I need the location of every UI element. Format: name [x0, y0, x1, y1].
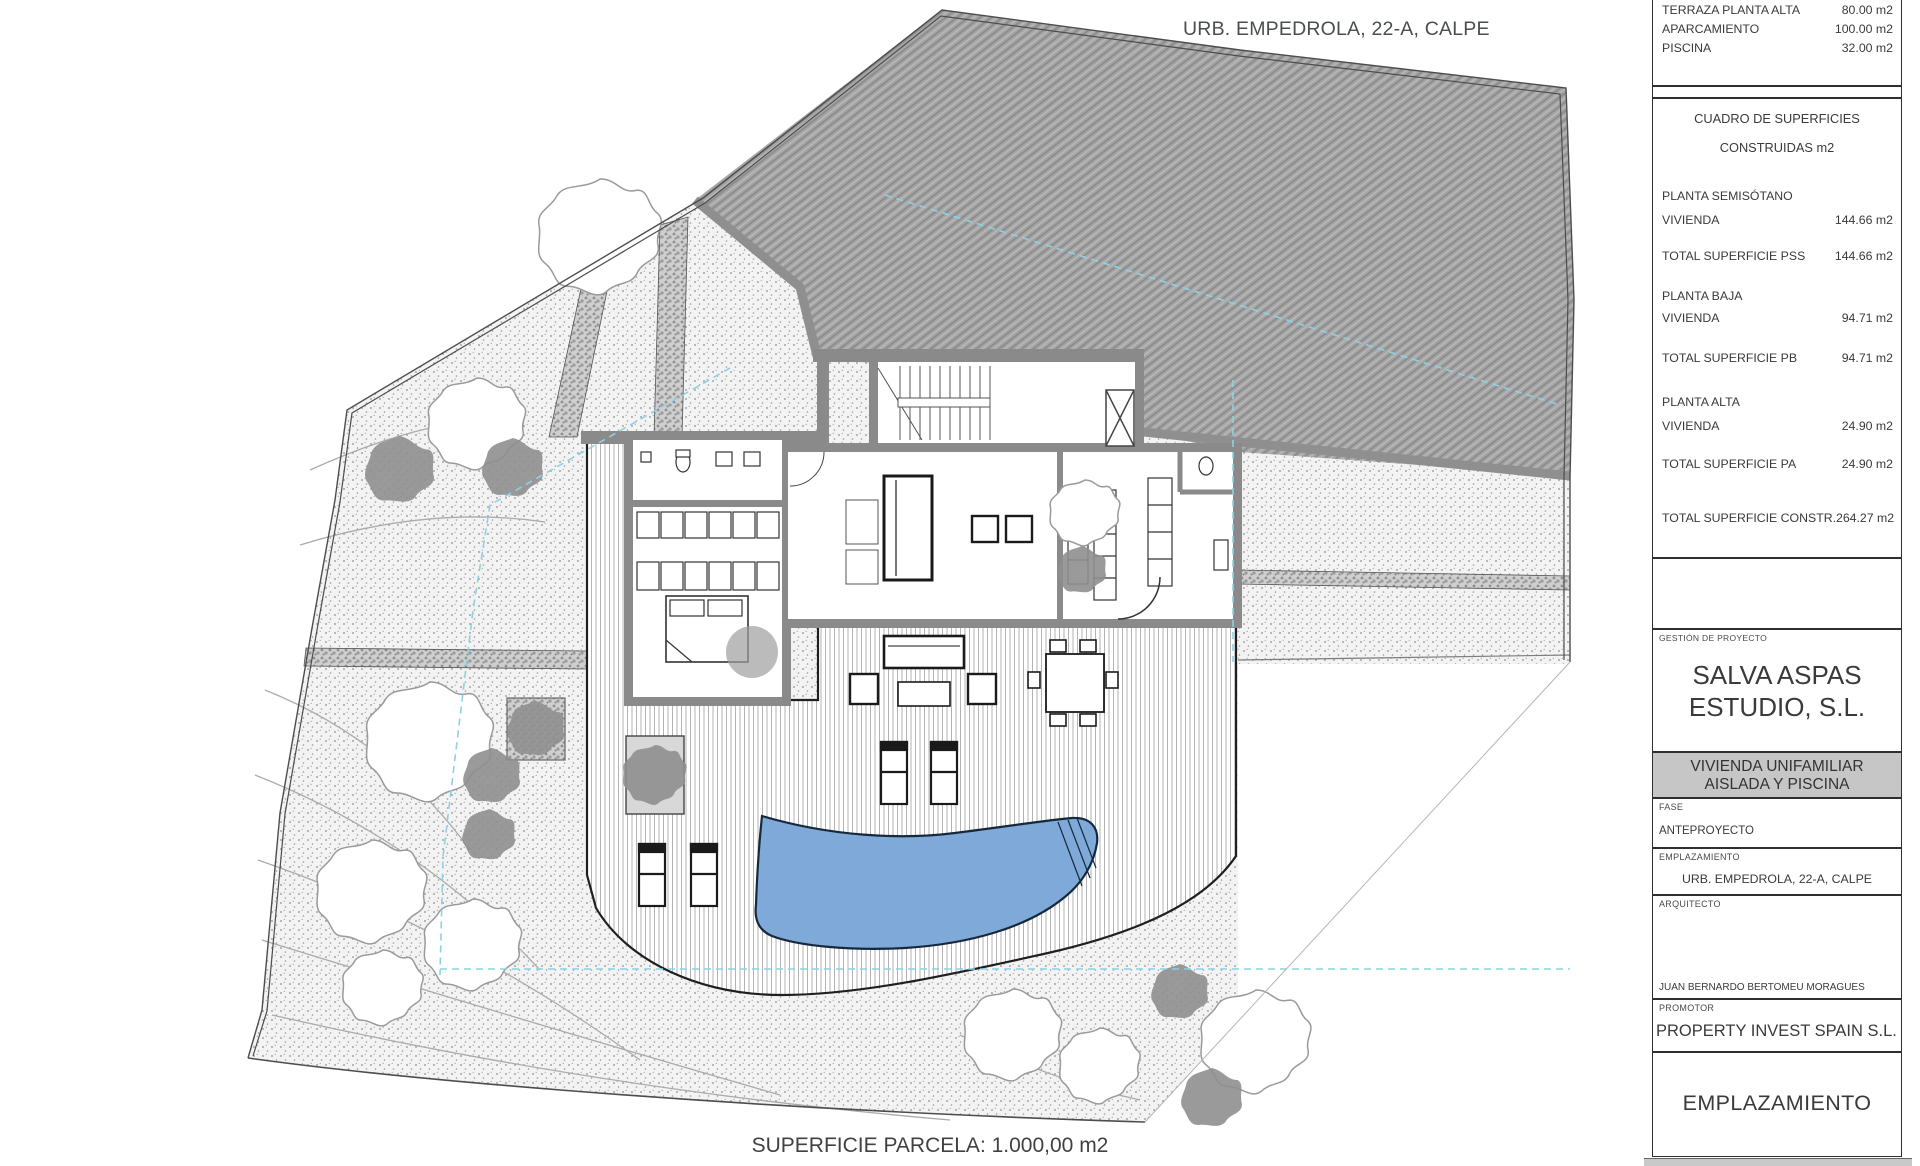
surface-total-row: TOTAL SUPERFICIE PB94.71 m2 — [1662, 351, 1893, 365]
site-plan-drawing — [0, 0, 1920, 1166]
area-row: PISCINA 32.00 m2 — [1662, 41, 1893, 55]
fase-label: FASE — [1659, 802, 1683, 812]
sheet-title-box: EMPLAZAMIENTO — [1652, 1052, 1902, 1157]
fase-value: ANTEPROYECTO — [1659, 825, 1754, 837]
section-label: PLANTA BAJA — [1662, 289, 1893, 303]
titleblock-bottom-strip — [1644, 1158, 1912, 1166]
fase-box: FASE ANTEPROYECTO — [1652, 798, 1902, 848]
spacer-box — [1652, 558, 1902, 629]
area-row: APARCAMIENTO 100.00 m2 — [1662, 22, 1893, 36]
location-value: URB. EMPEDROLA, 22-A, CALPE — [1653, 872, 1901, 886]
architect-label: ARQUITECTO — [1659, 899, 1721, 909]
drawing-title: URB. EMPEDROLA, 22-A, CALPE — [1183, 18, 1503, 41]
area-row: TERRAZA PLANTA ALTA 80.00 m2 — [1662, 3, 1893, 17]
surfaces-table-box: CUADRO DE SUPERFICIES CONSTRUIDAS m2 PLA… — [1652, 98, 1902, 558]
exterior-areas-box: TERRAZA PLANTA ALTA 80.00 m2 APARCAMIENT… — [1652, 0, 1902, 86]
architect-box: ARQUITECTO JUAN BERNARDO BERTOMEU MORAGU… — [1652, 895, 1902, 999]
developer-label: PROMOTOR — [1659, 1003, 1714, 1013]
spacer-box — [1652, 86, 1902, 98]
developer-name: PROPERTY INVEST SPAIN S.L. — [1656, 1022, 1901, 1041]
studio-name-line2: ESTUDIO, S.L. — [1653, 692, 1901, 723]
gestion-label: GESTIÓN DE PROYECTO — [1659, 633, 1767, 643]
round-rug — [726, 626, 778, 678]
surface-grand-total-row: TOTAL SUPERFICIE CONSTR.264.27 m2 — [1662, 511, 1893, 525]
surfaces-subtitle: CONSTRUIDAS m2 — [1653, 140, 1901, 155]
title-block: TERRAZA PLANTA ALTA 80.00 m2 APARCAMIENT… — [1652, 0, 1902, 1166]
site-plan-sheet: URB. EMPEDROLA, 22-A, CALPE SUPERFICIE P… — [0, 0, 1920, 1166]
elevator-shaft — [1106, 390, 1134, 446]
surface-total-row: TOTAL SUPERFICIE PSS144.66 m2 — [1662, 249, 1893, 263]
project-management-box: GESTIÓN DE PROYECTO SALVA ASPAS ESTUDIO,… — [1652, 629, 1902, 752]
studio-name-line1: SALVA ASPAS — [1653, 660, 1901, 691]
project-title-box: VIVIENDA UNIFAMILIAR AISLADA Y PISCINA — [1652, 752, 1902, 798]
surface-total-row: TOTAL SUPERFICIE PA24.90 m2 — [1662, 457, 1893, 471]
surface-row: VIVIENDA144.66 m2 — [1662, 213, 1893, 227]
location-label: EMPLAZAMIENTO — [1659, 852, 1740, 862]
section-label: PLANTA SEMISÓTANO — [1662, 189, 1893, 203]
project-title-line2: AISLADA Y PISCINA — [1653, 776, 1901, 794]
project-title-line1: VIVIENDA UNIFAMILIAR — [1653, 758, 1901, 776]
section-label: PLANTA ALTA — [1662, 395, 1893, 409]
developer-box: PROMOTOR PROPERTY INVEST SPAIN S.L. — [1652, 999, 1902, 1052]
parcel-area-note: SUPERFICIE PARCELA: 1.000,00 m2 — [600, 1134, 1260, 1158]
surface-row: VIVIENDA94.71 m2 — [1662, 311, 1893, 325]
surfaces-title: CUADRO DE SUPERFICIES — [1653, 111, 1901, 126]
sheet-title: EMPLAZAMIENTO — [1653, 1091, 1901, 1116]
surface-row: VIVIENDA24.90 m2 — [1662, 419, 1893, 433]
location-box: EMPLAZAMIENTO URB. EMPEDROLA, 22-A, CALP… — [1652, 848, 1902, 895]
architect-name: JUAN BERNARDO BERTOMEU MORAGUES — [1659, 982, 1865, 993]
